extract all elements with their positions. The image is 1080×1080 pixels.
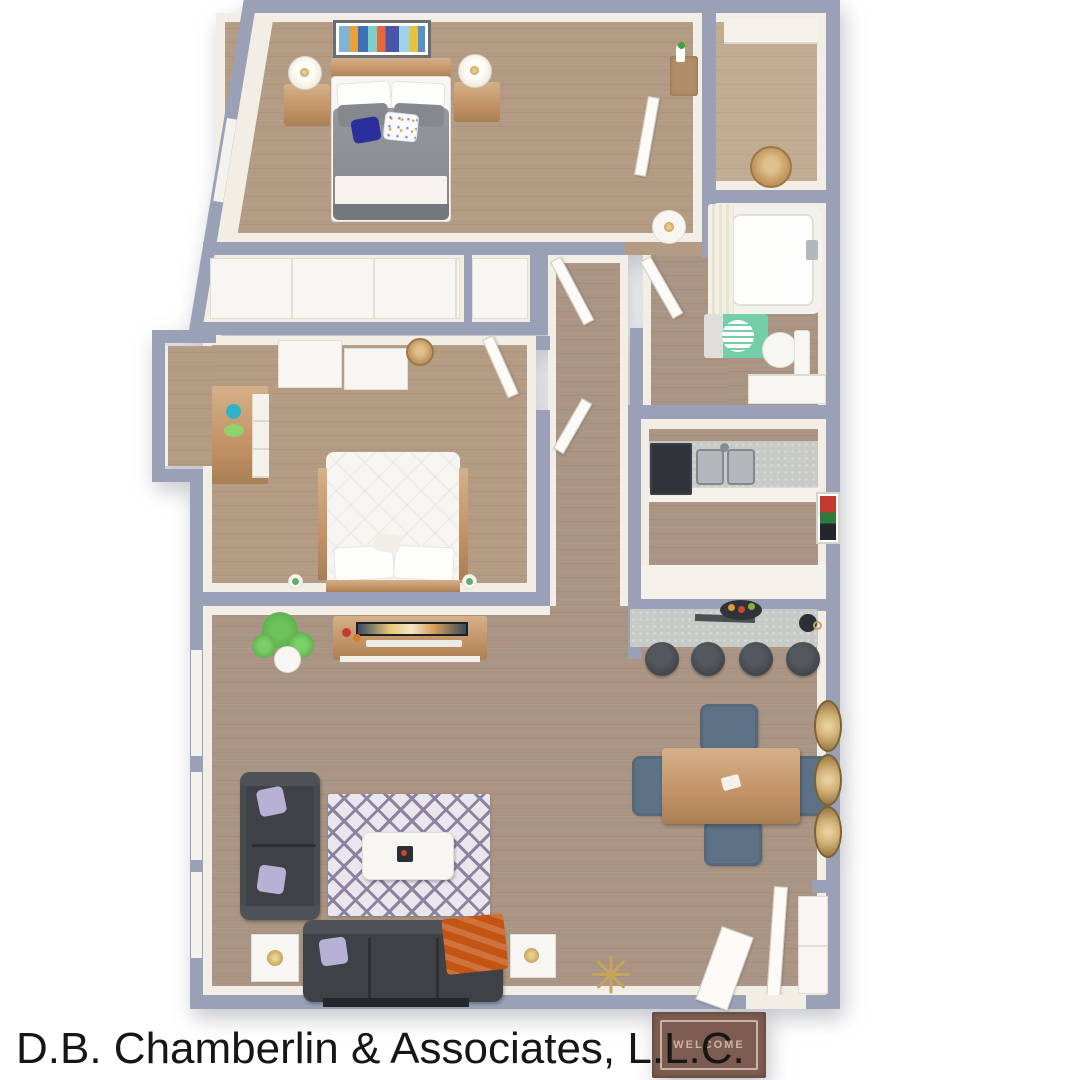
wall-segment — [806, 995, 840, 1009]
wall-segment — [700, 0, 840, 13]
window — [191, 650, 202, 756]
fruit — [728, 604, 735, 611]
cushion-seam — [252, 844, 316, 847]
lamp-finial — [470, 66, 479, 75]
houseplant-foliage — [252, 634, 276, 658]
wall-face-strip — [212, 606, 550, 615]
tv-screen — [358, 624, 466, 634]
tv — [356, 622, 468, 636]
sliding-closet-door — [278, 340, 342, 388]
framed-art-small — [816, 492, 840, 544]
stove — [650, 443, 692, 495]
bar-wall-face — [641, 565, 826, 601]
bedroom-door-threshold — [625, 242, 702, 255]
sink-faucet — [720, 443, 729, 452]
wall-mirror-decor — [814, 700, 842, 752]
bar-stool — [645, 642, 679, 676]
console-shelf — [340, 656, 480, 662]
wall-segment — [628, 405, 840, 419]
desk-nook-floor — [160, 346, 216, 466]
dining-chair — [704, 820, 762, 866]
plant-pot — [274, 646, 301, 673]
patterned-pillow — [383, 111, 420, 142]
throw-pillow — [256, 864, 286, 894]
pendant-ring — [813, 621, 822, 630]
dining-chair — [700, 704, 758, 752]
wall-segment — [464, 255, 472, 322]
cushion-seam — [436, 938, 439, 998]
bottle-cap — [678, 42, 685, 49]
art-print — [820, 496, 836, 540]
wall-segment — [196, 592, 550, 606]
wall-segment — [530, 255, 548, 322]
sconce-accent — [466, 578, 473, 585]
wall-segment — [630, 328, 643, 405]
wall-segment — [536, 410, 550, 606]
bed-rail — [318, 468, 327, 580]
accent-lamp — [267, 950, 283, 966]
art-print — [339, 26, 425, 52]
nightstand — [454, 82, 500, 122]
wall-segment — [152, 330, 165, 482]
bar-stool — [739, 642, 773, 676]
wall-mirror-decor — [814, 806, 842, 858]
shower-curtain — [708, 204, 734, 316]
wall-mounted-tv — [323, 998, 469, 1007]
wall-segment — [536, 336, 550, 350]
bar-stool — [786, 642, 820, 676]
bath-vanity — [748, 374, 826, 404]
apartment-floor-plan: WELCOME — [0, 0, 1080, 1080]
sconce-accent — [292, 578, 299, 585]
cushion-seam — [368, 938, 371, 998]
navy-accent-pillow — [350, 116, 382, 144]
decor-object — [342, 628, 351, 637]
bath-faucet — [806, 240, 818, 260]
accent-lamp — [524, 948, 539, 963]
wardrobe — [472, 258, 528, 319]
sliding-closet-door — [344, 348, 408, 390]
teal-vase — [226, 404, 241, 419]
wall-segment — [203, 242, 625, 255]
round-basket — [406, 338, 434, 366]
nightstand — [284, 84, 330, 126]
orange-throw — [441, 913, 509, 975]
toilet-tank — [794, 330, 810, 376]
wall-segment — [244, 0, 716, 13]
wall-segment — [716, 190, 840, 203]
loveseat-armrest — [240, 906, 320, 920]
toilet — [762, 332, 798, 368]
starburst-decor — [592, 956, 630, 994]
floor-plan-image: WELCOME D.B. Chamberlin & Associates, L.… — [0, 0, 1080, 1080]
woven-basket — [750, 146, 792, 188]
master-bedroom-floor — [216, 13, 702, 242]
decor-object — [353, 634, 361, 642]
green-bowl — [224, 424, 244, 437]
wall-segment — [152, 469, 203, 482]
desk-drawers — [252, 394, 269, 478]
bathtub-basin — [732, 214, 814, 306]
tray-accent — [401, 850, 407, 856]
accent-lamp — [664, 222, 674, 232]
bed-foot — [333, 204, 449, 220]
framed-art — [333, 20, 431, 58]
window — [191, 772, 202, 860]
entry-threshold — [746, 995, 806, 1009]
wall-segment — [812, 880, 840, 893]
soundbar — [366, 640, 462, 647]
bed-rail — [459, 468, 468, 580]
laundry-hamper — [670, 56, 698, 96]
bath-mat — [704, 314, 768, 358]
sink-basin — [696, 449, 724, 485]
headboard — [331, 58, 451, 78]
bed-pillow — [393, 544, 455, 581]
bath-mat-motif — [722, 320, 754, 352]
fruit-bowl — [720, 600, 762, 620]
closet-shelf — [724, 18, 818, 44]
wardrobe — [210, 258, 460, 319]
throw-pillow — [255, 785, 287, 817]
company-caption: D.B. Chamberlin & Associates, L.L.C. — [16, 1024, 745, 1074]
entry-closet — [798, 896, 828, 994]
wall-segment — [196, 322, 548, 335]
lamp-finial — [300, 68, 309, 77]
footboard — [326, 580, 460, 592]
sink-basin — [727, 449, 755, 485]
throw-pillow — [318, 936, 348, 966]
wall-mirror-decor — [814, 754, 842, 806]
bar-stool — [691, 642, 725, 676]
loveseat-armrest — [240, 772, 320, 786]
bathtub — [720, 206, 822, 314]
window — [191, 872, 202, 958]
